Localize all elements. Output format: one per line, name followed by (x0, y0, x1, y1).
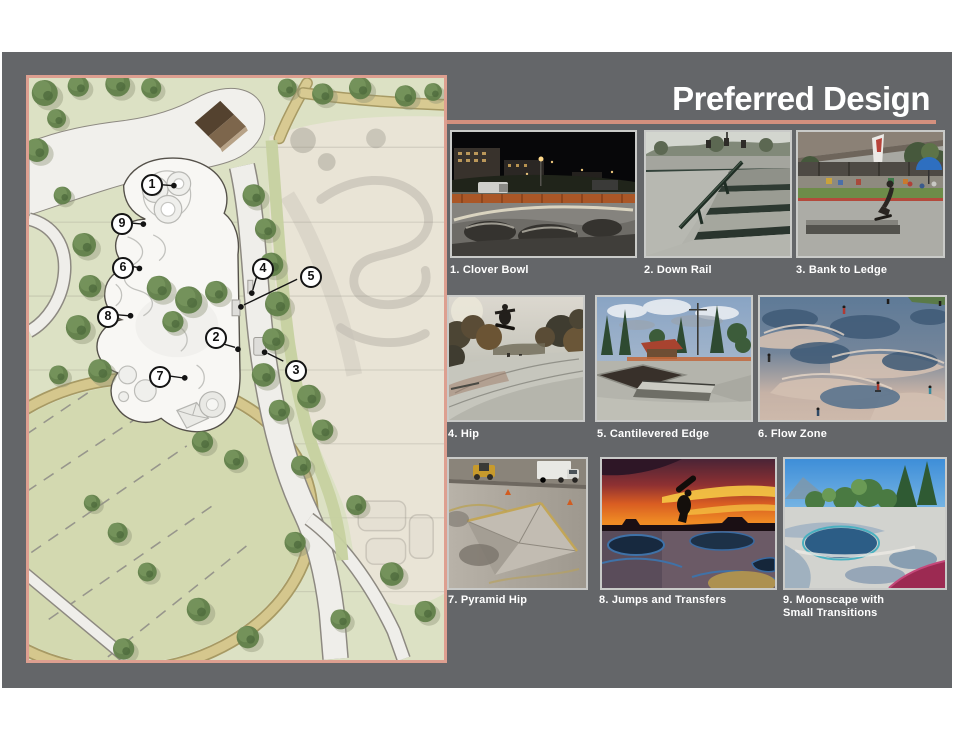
photo-hip (447, 295, 585, 422)
photo-caption: 5. Cantilevered Edge (597, 428, 755, 441)
map-callout-4: 4 (252, 258, 274, 280)
page-title: Preferred Design (672, 80, 930, 118)
map-callout-8: 8 (97, 306, 119, 328)
photo-flow-zone (758, 295, 947, 422)
map-callout-3: 3 (285, 360, 307, 382)
photo-cantilevered-edge (595, 295, 753, 422)
photo-down-rail (644, 130, 792, 258)
photo-caption: 7. Pyramid Hip (448, 594, 589, 607)
photo-caption: 8. Jumps and Transfers (599, 594, 776, 607)
map-callout-7: 7 (149, 366, 171, 388)
site-plan-map (29, 78, 444, 660)
map-callout-1: 1 (141, 174, 163, 196)
photo-pyramid-hip (447, 457, 588, 590)
map-callout-5: 5 (300, 266, 322, 288)
photo-caption: 6. Flow Zone (758, 428, 947, 441)
map-callout-9: 9 (111, 213, 133, 235)
map-callout-6: 6 (112, 257, 134, 279)
title-underline (447, 120, 936, 124)
site-plan: 1 2 3 4 5 6 7 8 9 (26, 75, 447, 663)
photo-clover-bowl (450, 130, 637, 258)
photo-moonscape (783, 457, 947, 590)
slide-background: 1 2 3 4 5 6 7 8 9 Preferred Design (2, 52, 952, 688)
photo-caption: 9. Moonscape with Small Transitions (783, 594, 895, 620)
photo-caption: 4. Hip (448, 428, 586, 441)
photo-jumps-transfers (600, 457, 777, 590)
photo-caption: 1. Clover Bowl (450, 264, 637, 277)
photo-caption: 3. Bank to Ledge (796, 264, 945, 277)
photo-bank-to-ledge (796, 130, 945, 258)
map-callout-2: 2 (205, 327, 227, 349)
design-board: 1 2 3 4 5 6 7 8 9 Preferred Design (0, 0, 960, 741)
photo-caption: 2. Down Rail (644, 264, 792, 277)
